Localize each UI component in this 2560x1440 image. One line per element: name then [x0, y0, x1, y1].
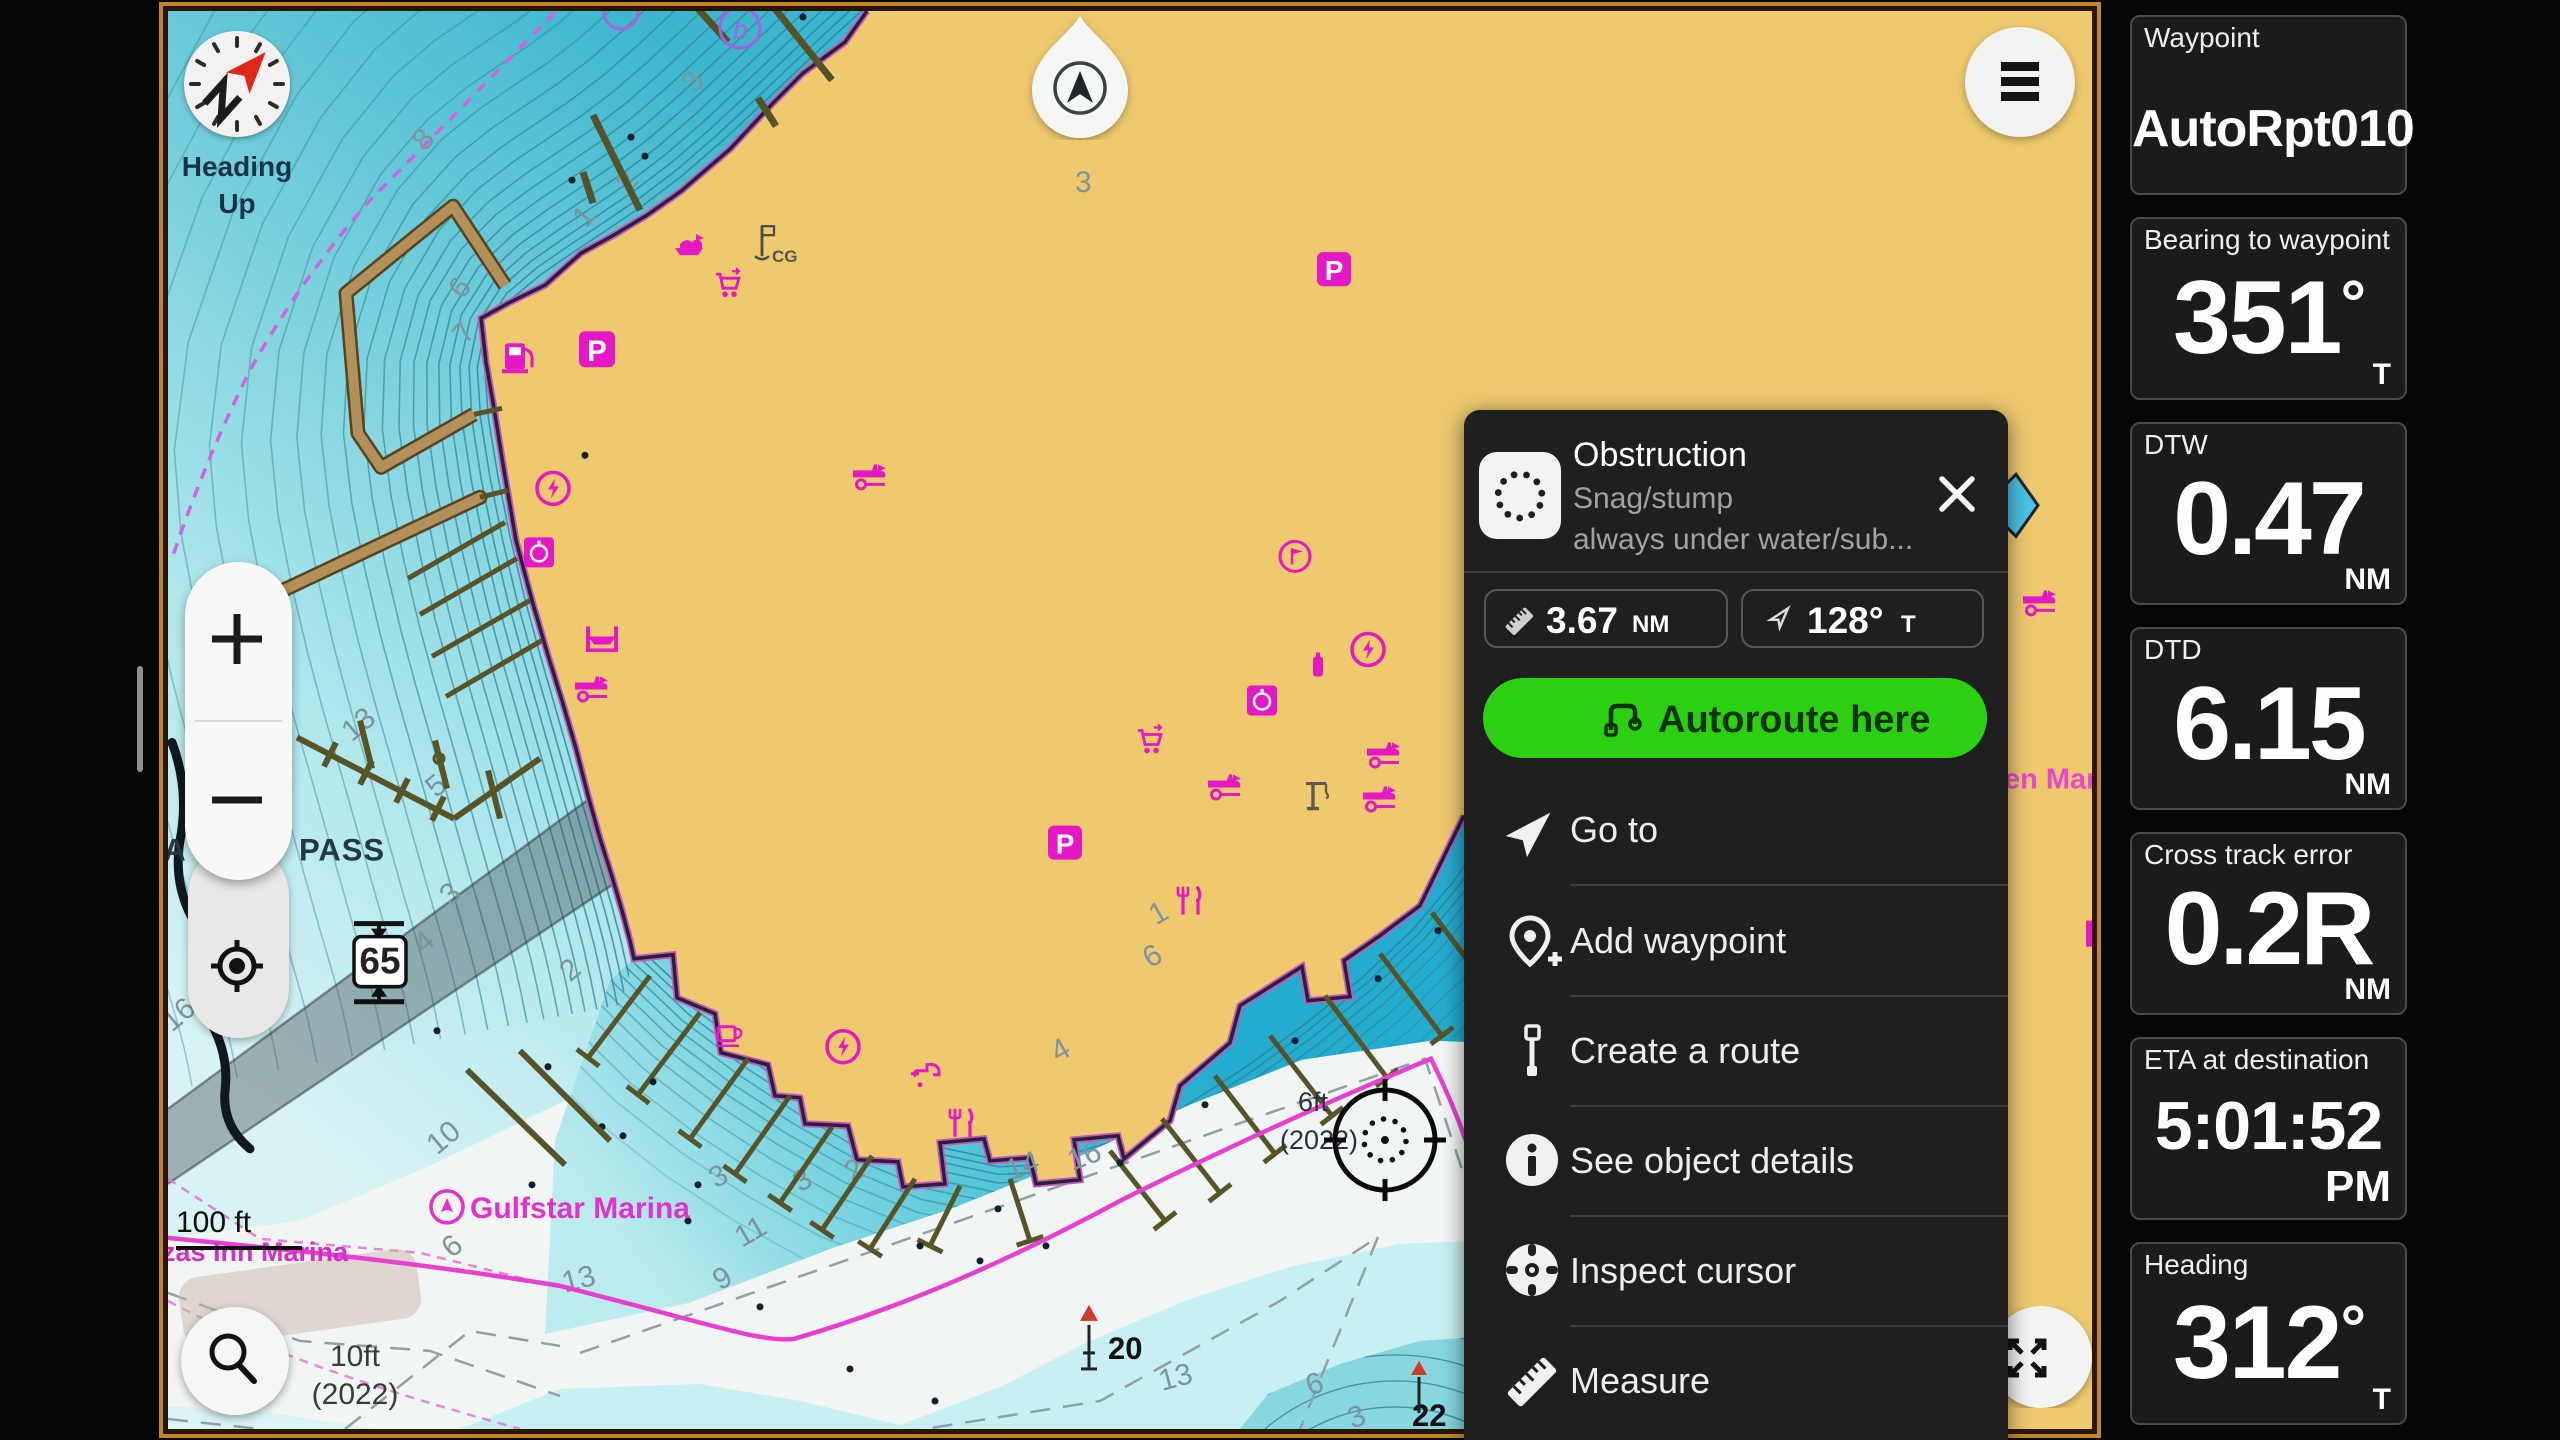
svg-text:20: 20	[1108, 1331, 1142, 1366]
svg-text:3: 3	[1075, 166, 1092, 199]
svg-text:P: P	[587, 335, 607, 368]
svg-text:22: 22	[1412, 1398, 1446, 1429]
svg-text:CG: CG	[772, 247, 797, 266]
svg-text:DA: DA	[168, 833, 187, 868]
svg-text:Gulfstar Marina: Gulfstar Marina	[470, 1192, 690, 1225]
svg-text:b: b	[733, 15, 747, 45]
svg-text:P: P	[1325, 255, 1344, 286]
svg-text:zas Inn Marina: zas Inn Marina	[168, 1237, 349, 1267]
svg-text:en Marin: en Marin	[2004, 764, 2092, 796]
svg-text:P: P	[1056, 828, 1075, 859]
svg-text:PASS: PASS	[299, 833, 385, 868]
svg-text:65: 65	[359, 940, 400, 982]
